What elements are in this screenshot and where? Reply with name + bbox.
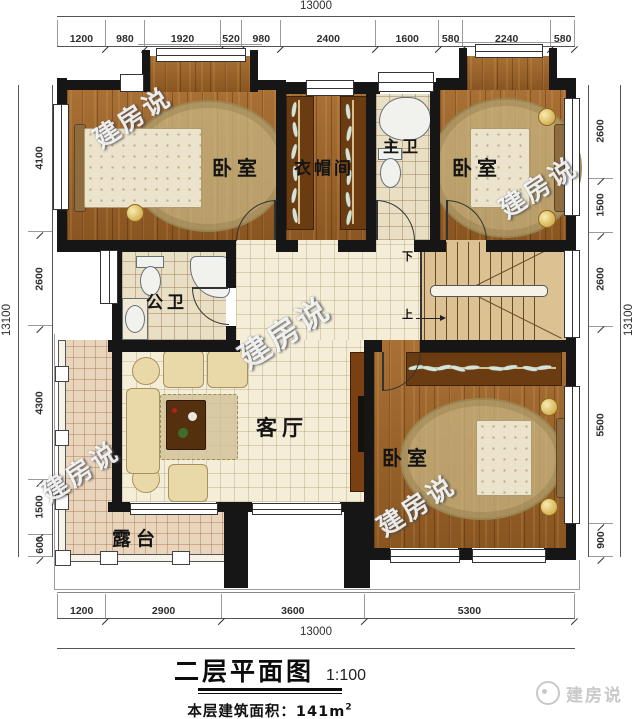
armchair	[163, 350, 204, 388]
window	[472, 549, 546, 563]
window	[100, 250, 118, 304]
area-sup: 2	[345, 703, 352, 713]
toilet	[380, 158, 401, 188]
table-decor	[188, 412, 197, 421]
window	[306, 80, 354, 96]
armchair	[168, 464, 208, 502]
floorplan-canvas: 13000 1200 980 1920 520 980 2400 1600 58…	[0, 0, 640, 719]
window	[156, 48, 246, 62]
room-label-cloakroom: 衣帽间	[294, 154, 354, 179]
window	[378, 72, 434, 92]
stair-up-label: 上	[402, 306, 413, 322]
bedside-lamp	[538, 108, 556, 126]
bed	[476, 420, 532, 496]
logo-text: 建房说	[566, 681, 623, 706]
area-line: 本层建筑面积：141m2	[140, 700, 400, 719]
room-label-master-bath: 主卫	[383, 133, 421, 157]
window	[252, 503, 342, 515]
stair-handrail	[430, 285, 548, 297]
table-decor	[172, 408, 177, 413]
bedside-lamp	[540, 398, 558, 416]
floor-plan: 下 上	[0, 0, 640, 640]
bedside-lamp	[538, 210, 556, 228]
sink	[125, 305, 145, 333]
room-label-public-bath: 公卫	[146, 288, 188, 313]
room-label-bedroom-bottom-right: 卧室	[382, 442, 432, 471]
room-label-terrace: 露台	[112, 524, 160, 551]
title-underline	[198, 688, 342, 691]
window	[475, 44, 543, 58]
window	[53, 104, 69, 210]
rail-post	[55, 366, 69, 382]
bedside-lamp	[126, 204, 144, 222]
rail-post	[172, 551, 190, 565]
window	[564, 250, 580, 338]
area-text: 本层建筑面积：141m	[187, 704, 345, 719]
stair-balustrade	[420, 240, 422, 343]
room-label-living: 客厅	[256, 412, 308, 442]
rail-post	[55, 550, 71, 566]
logo-icon	[536, 681, 560, 705]
room-label-bedroom-top-right: 卧室	[452, 152, 502, 181]
side-table	[132, 357, 160, 385]
sofa	[126, 388, 160, 474]
rail-post	[55, 430, 69, 446]
window	[390, 549, 460, 563]
terrace-rail-south	[58, 554, 230, 562]
rail-post	[100, 551, 118, 565]
logo: 建房说	[536, 678, 636, 708]
dim-bottom-total-line	[57, 648, 575, 649]
title-block: 二层平面图 1:100	[140, 652, 400, 688]
window	[564, 386, 580, 524]
plan-title: 二层平面图	[174, 652, 314, 688]
sliding-door	[130, 503, 218, 515]
plan-scale: 1:100	[326, 667, 366, 685]
bedside-lamp	[540, 498, 558, 516]
bedroom-top-right-bay-floor	[467, 56, 549, 90]
stair-down-label: 下	[402, 248, 413, 264]
title-underline-2	[198, 693, 342, 694]
room-label-bedroom-top-left: 卧室	[212, 152, 262, 181]
